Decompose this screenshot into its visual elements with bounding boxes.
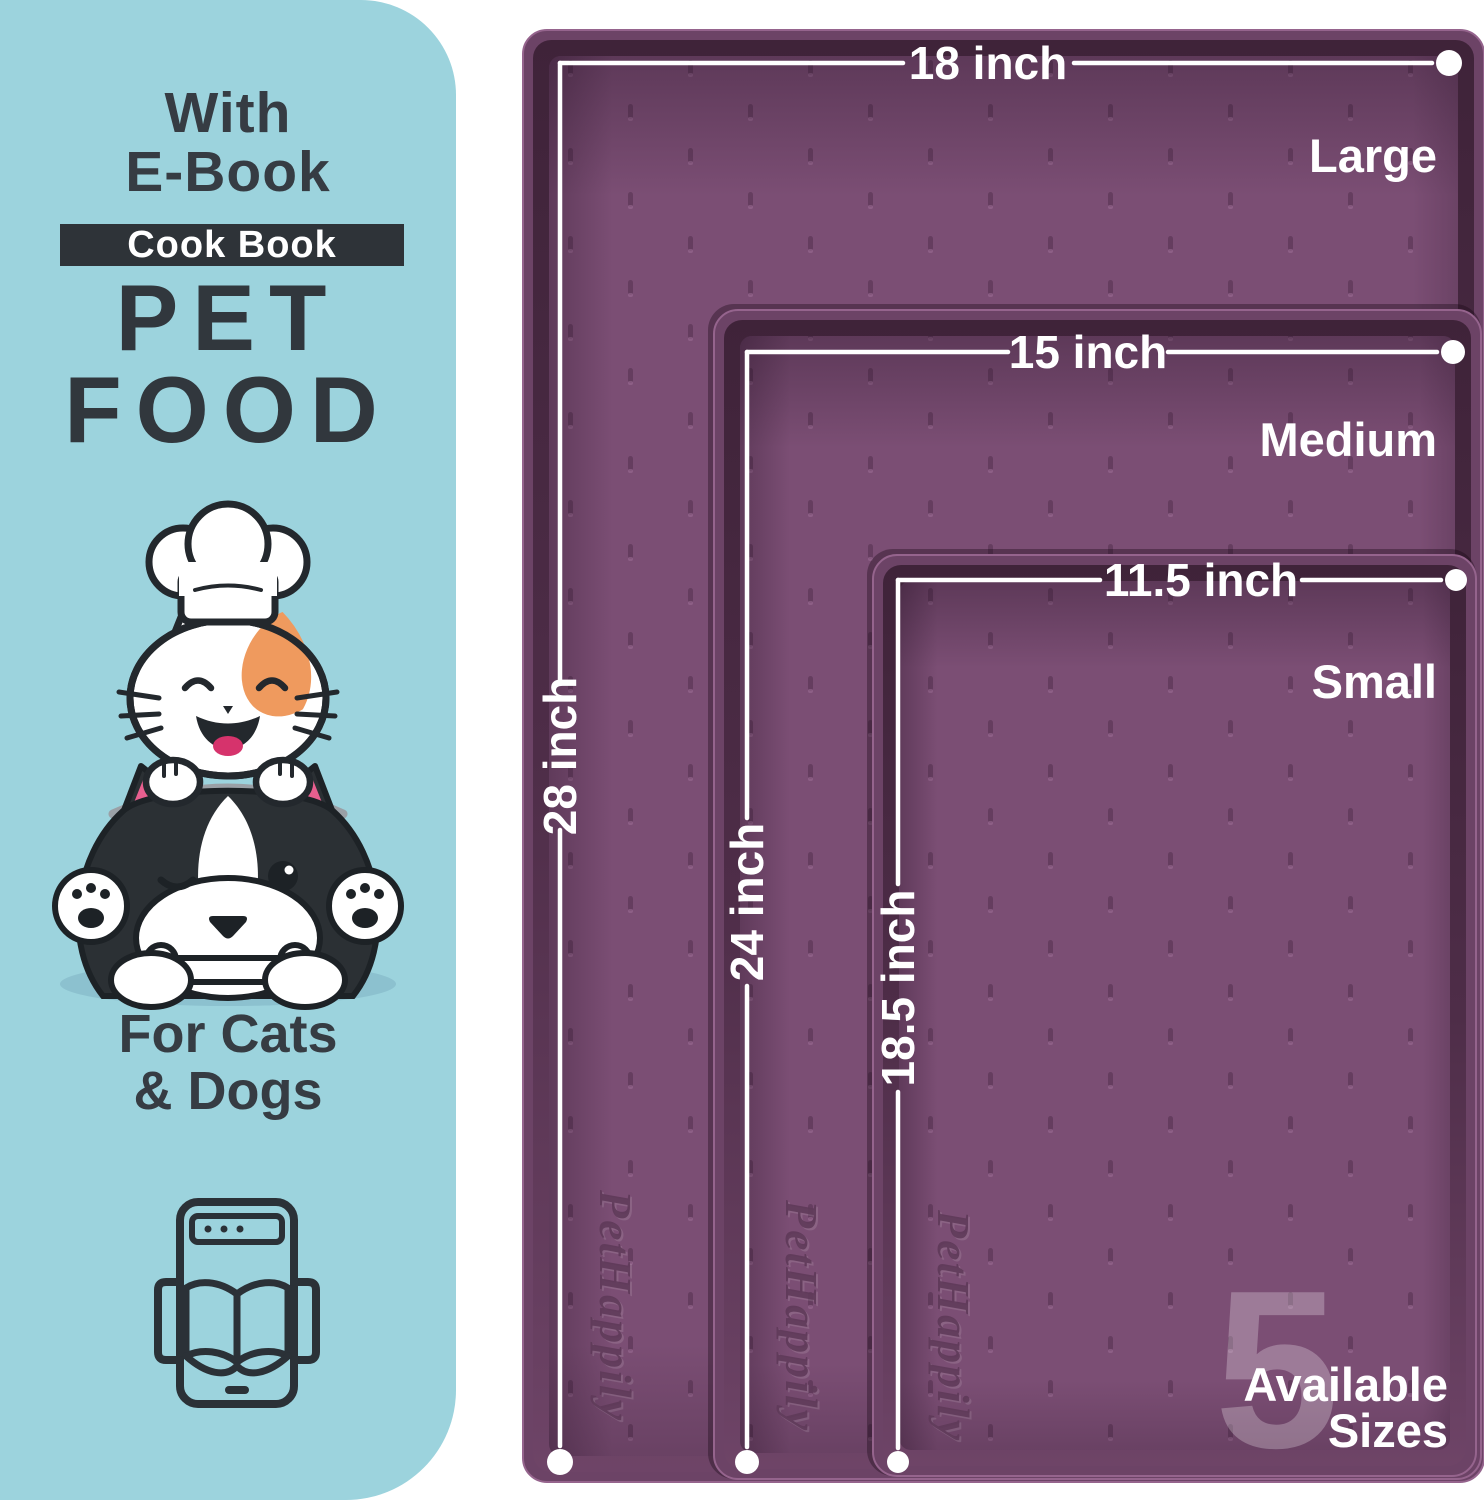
medium-length-label: 24 inch: [721, 823, 773, 982]
dimension-dot: [1445, 569, 1467, 591]
small-size-label: Small: [1312, 655, 1437, 708]
small-width-label: 11.5 inch: [1104, 554, 1298, 606]
dimension-dot: [887, 1451, 909, 1473]
medium-size-label: Medium: [1259, 413, 1437, 466]
ebook-heading-line2: E-Book: [0, 143, 456, 202]
svg-text:PetHappily: PetHappily: [776, 1199, 827, 1432]
dimension-dot: [735, 1450, 759, 1474]
small-length-label: 18.5 inch: [872, 890, 924, 1087]
ebook-icon: [146, 1196, 328, 1410]
open-eye: [268, 861, 298, 891]
chef-cat: [119, 504, 358, 804]
large-size-label: Large: [1309, 129, 1437, 182]
large-length-label: 28 inch: [534, 677, 586, 836]
dimension-dot: [1436, 50, 1462, 76]
medium-width-label: 15 inch: [1009, 326, 1168, 378]
audience-text: For Cats & Dogs: [0, 1006, 456, 1120]
svg-text:PetHappily: PetHappily: [928, 1209, 979, 1442]
available-word2: Sizes: [1328, 1404, 1448, 1457]
audience-line2: & Dogs: [0, 1063, 456, 1120]
pet-food-title-line2: FOOD: [0, 364, 456, 456]
brand-embossed-large: PetHappily PetHappily: [590, 1189, 643, 1424]
brand-embossed-medium: PetHappily PetHappily: [776, 1199, 829, 1434]
audience-line1: For Cats: [0, 1006, 456, 1063]
cat-tongue: [213, 736, 243, 756]
chef-hat: [149, 504, 307, 622]
chef-cat-dog-illustration: [43, 466, 413, 1011]
dimension-dot: [547, 1449, 573, 1475]
dimension-dot: [1441, 340, 1465, 364]
pet-food-title: PET FOOD: [0, 272, 456, 456]
left-info-panel: With E-Book Cook Book PET FOOD: [0, 0, 456, 1500]
ebook-heading-line1: With: [0, 84, 456, 143]
cookbook-badge: Cook Book: [60, 224, 404, 266]
brand-embossed-small: PetHappily PetHappily: [928, 1209, 981, 1444]
svg-text:PetHappily: PetHappily: [590, 1189, 641, 1422]
large-width-label: 18 inch: [909, 37, 1068, 89]
product-infographic: PetHappily PetHappily PetHappily PetHapp…: [0, 0, 1484, 1500]
pet-food-title-line1: PET: [0, 272, 456, 364]
ebook-heading: With E-Book: [0, 84, 456, 203]
husky-dog: [55, 766, 401, 1007]
